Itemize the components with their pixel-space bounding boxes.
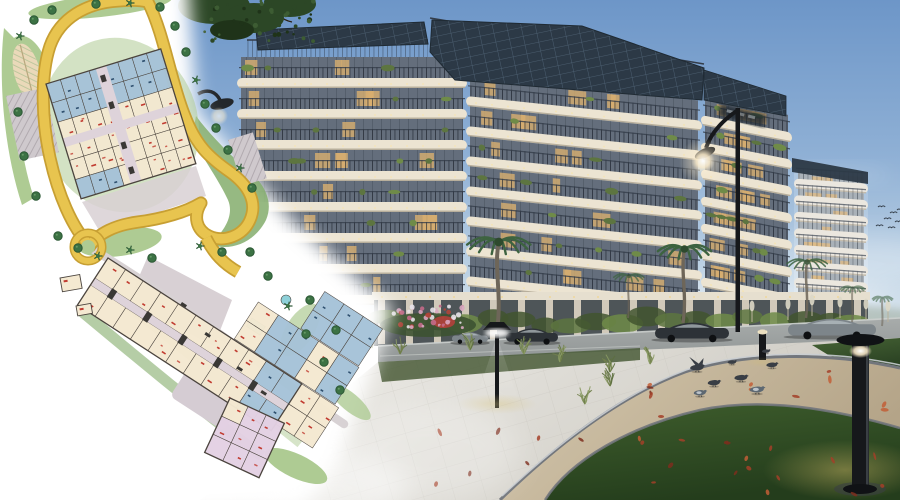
- plan-tree: [92, 0, 100, 8]
- plan-tree: [32, 192, 40, 200]
- plan-tree: [332, 326, 340, 334]
- plan-tree: [20, 152, 28, 160]
- plan-tree: [30, 16, 38, 24]
- plan-tree: [14, 108, 22, 116]
- plan-tree: [246, 248, 254, 256]
- plan-tree: [212, 124, 220, 132]
- plan-tree: [148, 254, 156, 262]
- plan-tree: [218, 248, 226, 256]
- amenity-block: [60, 275, 82, 292]
- plan-tree: [336, 386, 344, 394]
- plan-tree: [320, 358, 328, 366]
- plan-tree: [48, 6, 56, 14]
- plan-tree: [302, 330, 310, 338]
- plan-tree: [74, 244, 82, 252]
- plan-tree: [264, 272, 272, 280]
- plan-tree: [306, 296, 314, 304]
- plan-tree: [224, 146, 232, 154]
- hero-render: [0, 0, 900, 500]
- plan-tree: [201, 100, 209, 108]
- plan-tree: [248, 184, 256, 192]
- screenshot-root: [0, 0, 900, 500]
- amenity-block: [76, 303, 93, 315]
- pool: [281, 295, 291, 305]
- plan-tree: [171, 22, 179, 30]
- plan-tree: [182, 48, 190, 56]
- plan-tree: [54, 232, 62, 240]
- plan-tree: [156, 3, 164, 11]
